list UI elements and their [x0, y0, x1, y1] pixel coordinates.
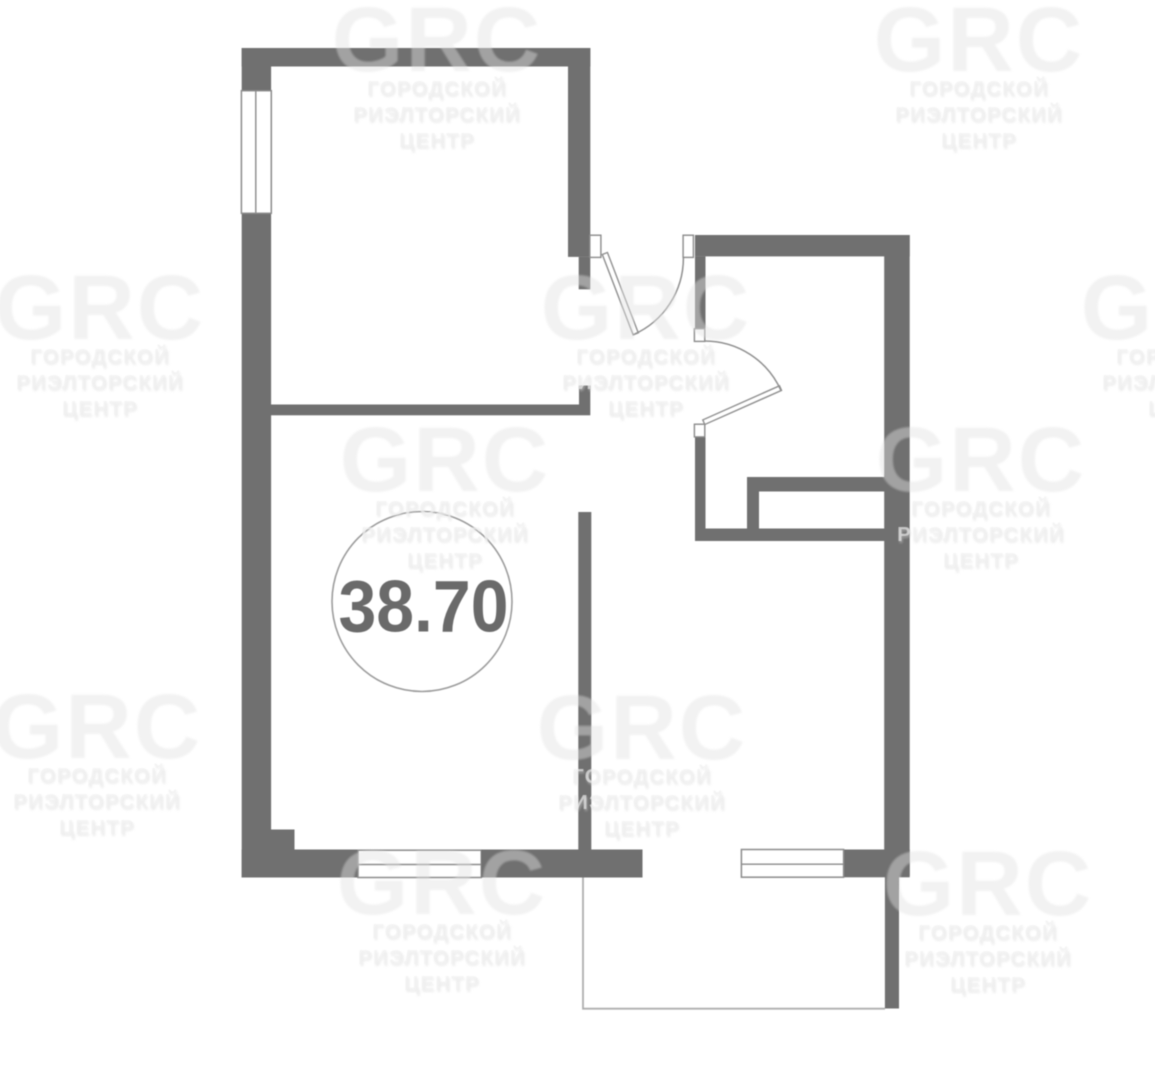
svg-text:38.70: 38.70: [339, 567, 509, 648]
